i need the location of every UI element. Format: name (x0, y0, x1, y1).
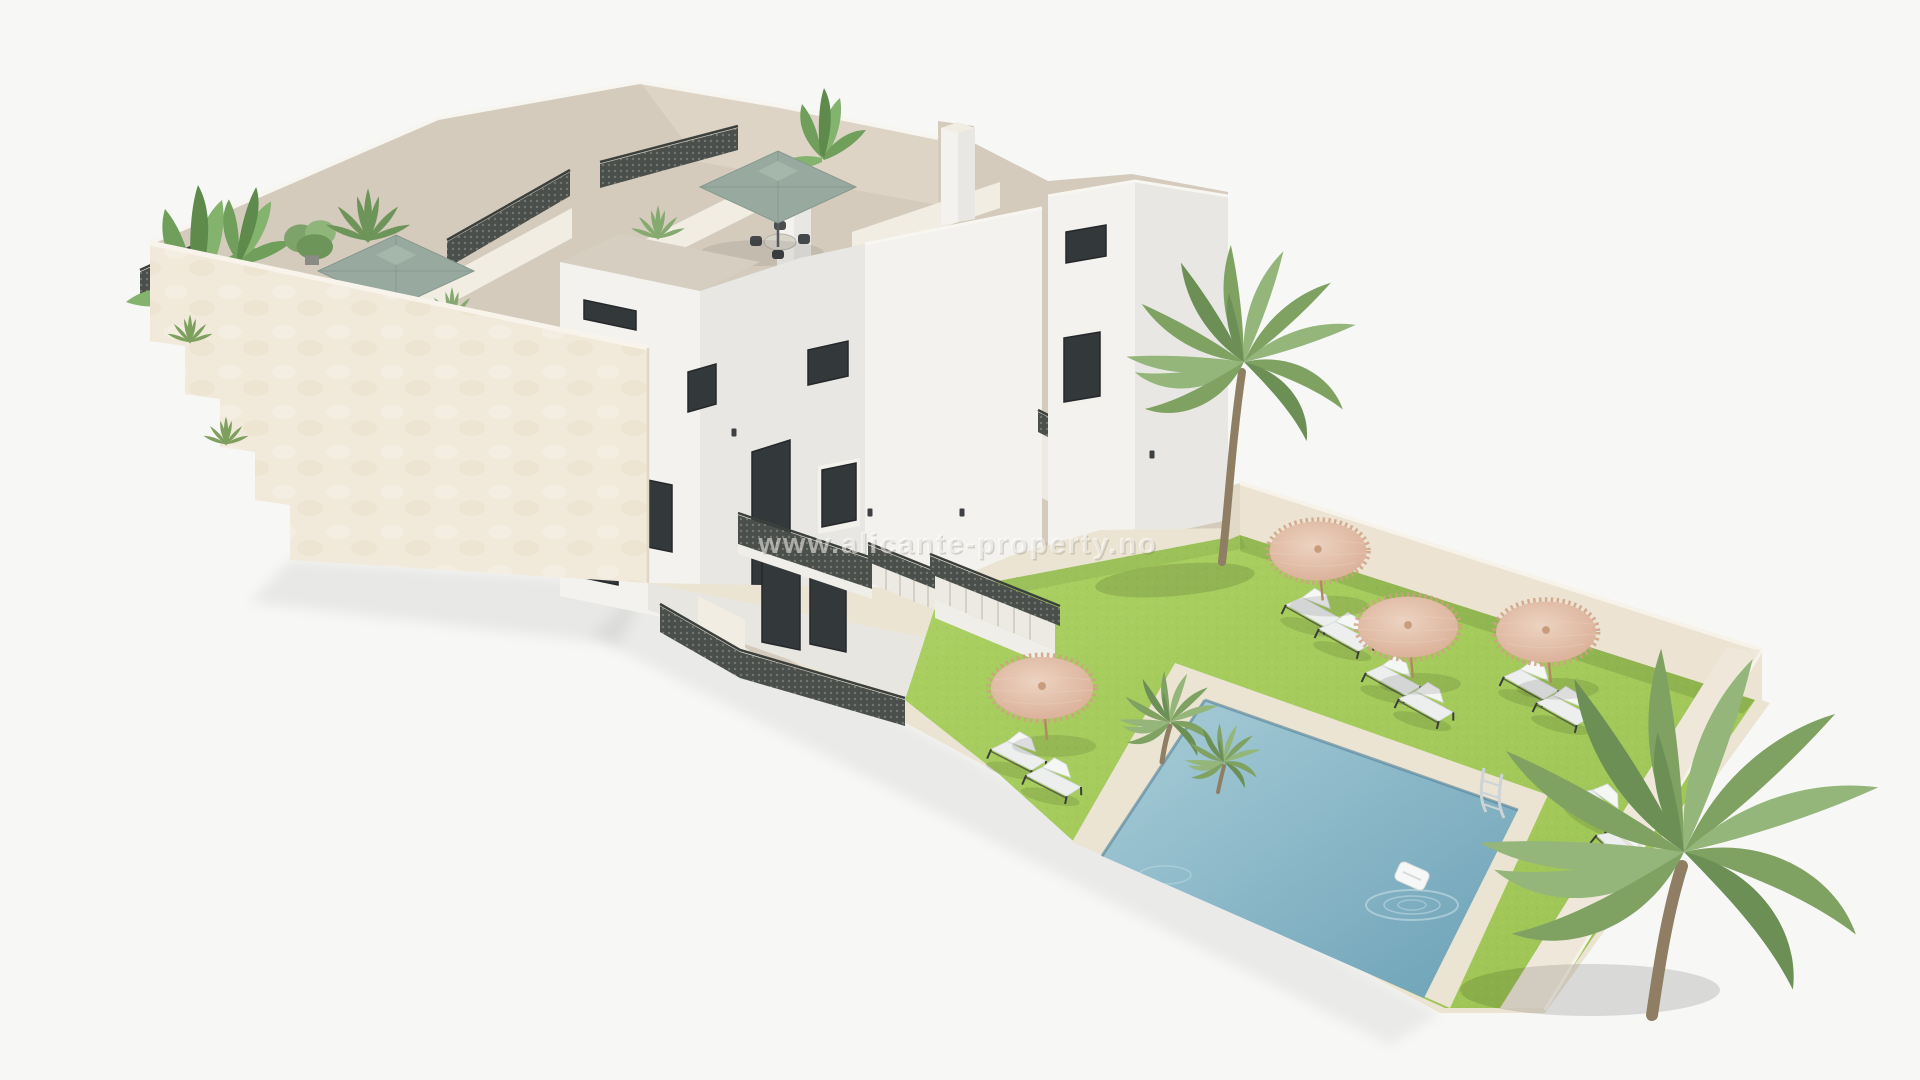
window (818, 458, 860, 534)
chimney (941, 122, 975, 225)
window (1060, 327, 1104, 407)
window (1066, 225, 1106, 263)
watermark: www.alicante-property.no www.alicante-pr… (757, 528, 1159, 562)
window (688, 364, 716, 412)
wall-lamp (960, 509, 965, 517)
wall-lamp (732, 429, 737, 437)
scene-canvas: www.alicante-property.no www.alicante-pr… (0, 0, 1920, 1080)
render-3d-property-complex: www.alicante-property.no www.alicante-pr… (0, 0, 1920, 1080)
wall-lamp (868, 509, 873, 517)
patio-door (762, 560, 800, 650)
watermark-text: www.alicante-property.no (757, 528, 1157, 560)
wall-lamp (1150, 451, 1155, 459)
